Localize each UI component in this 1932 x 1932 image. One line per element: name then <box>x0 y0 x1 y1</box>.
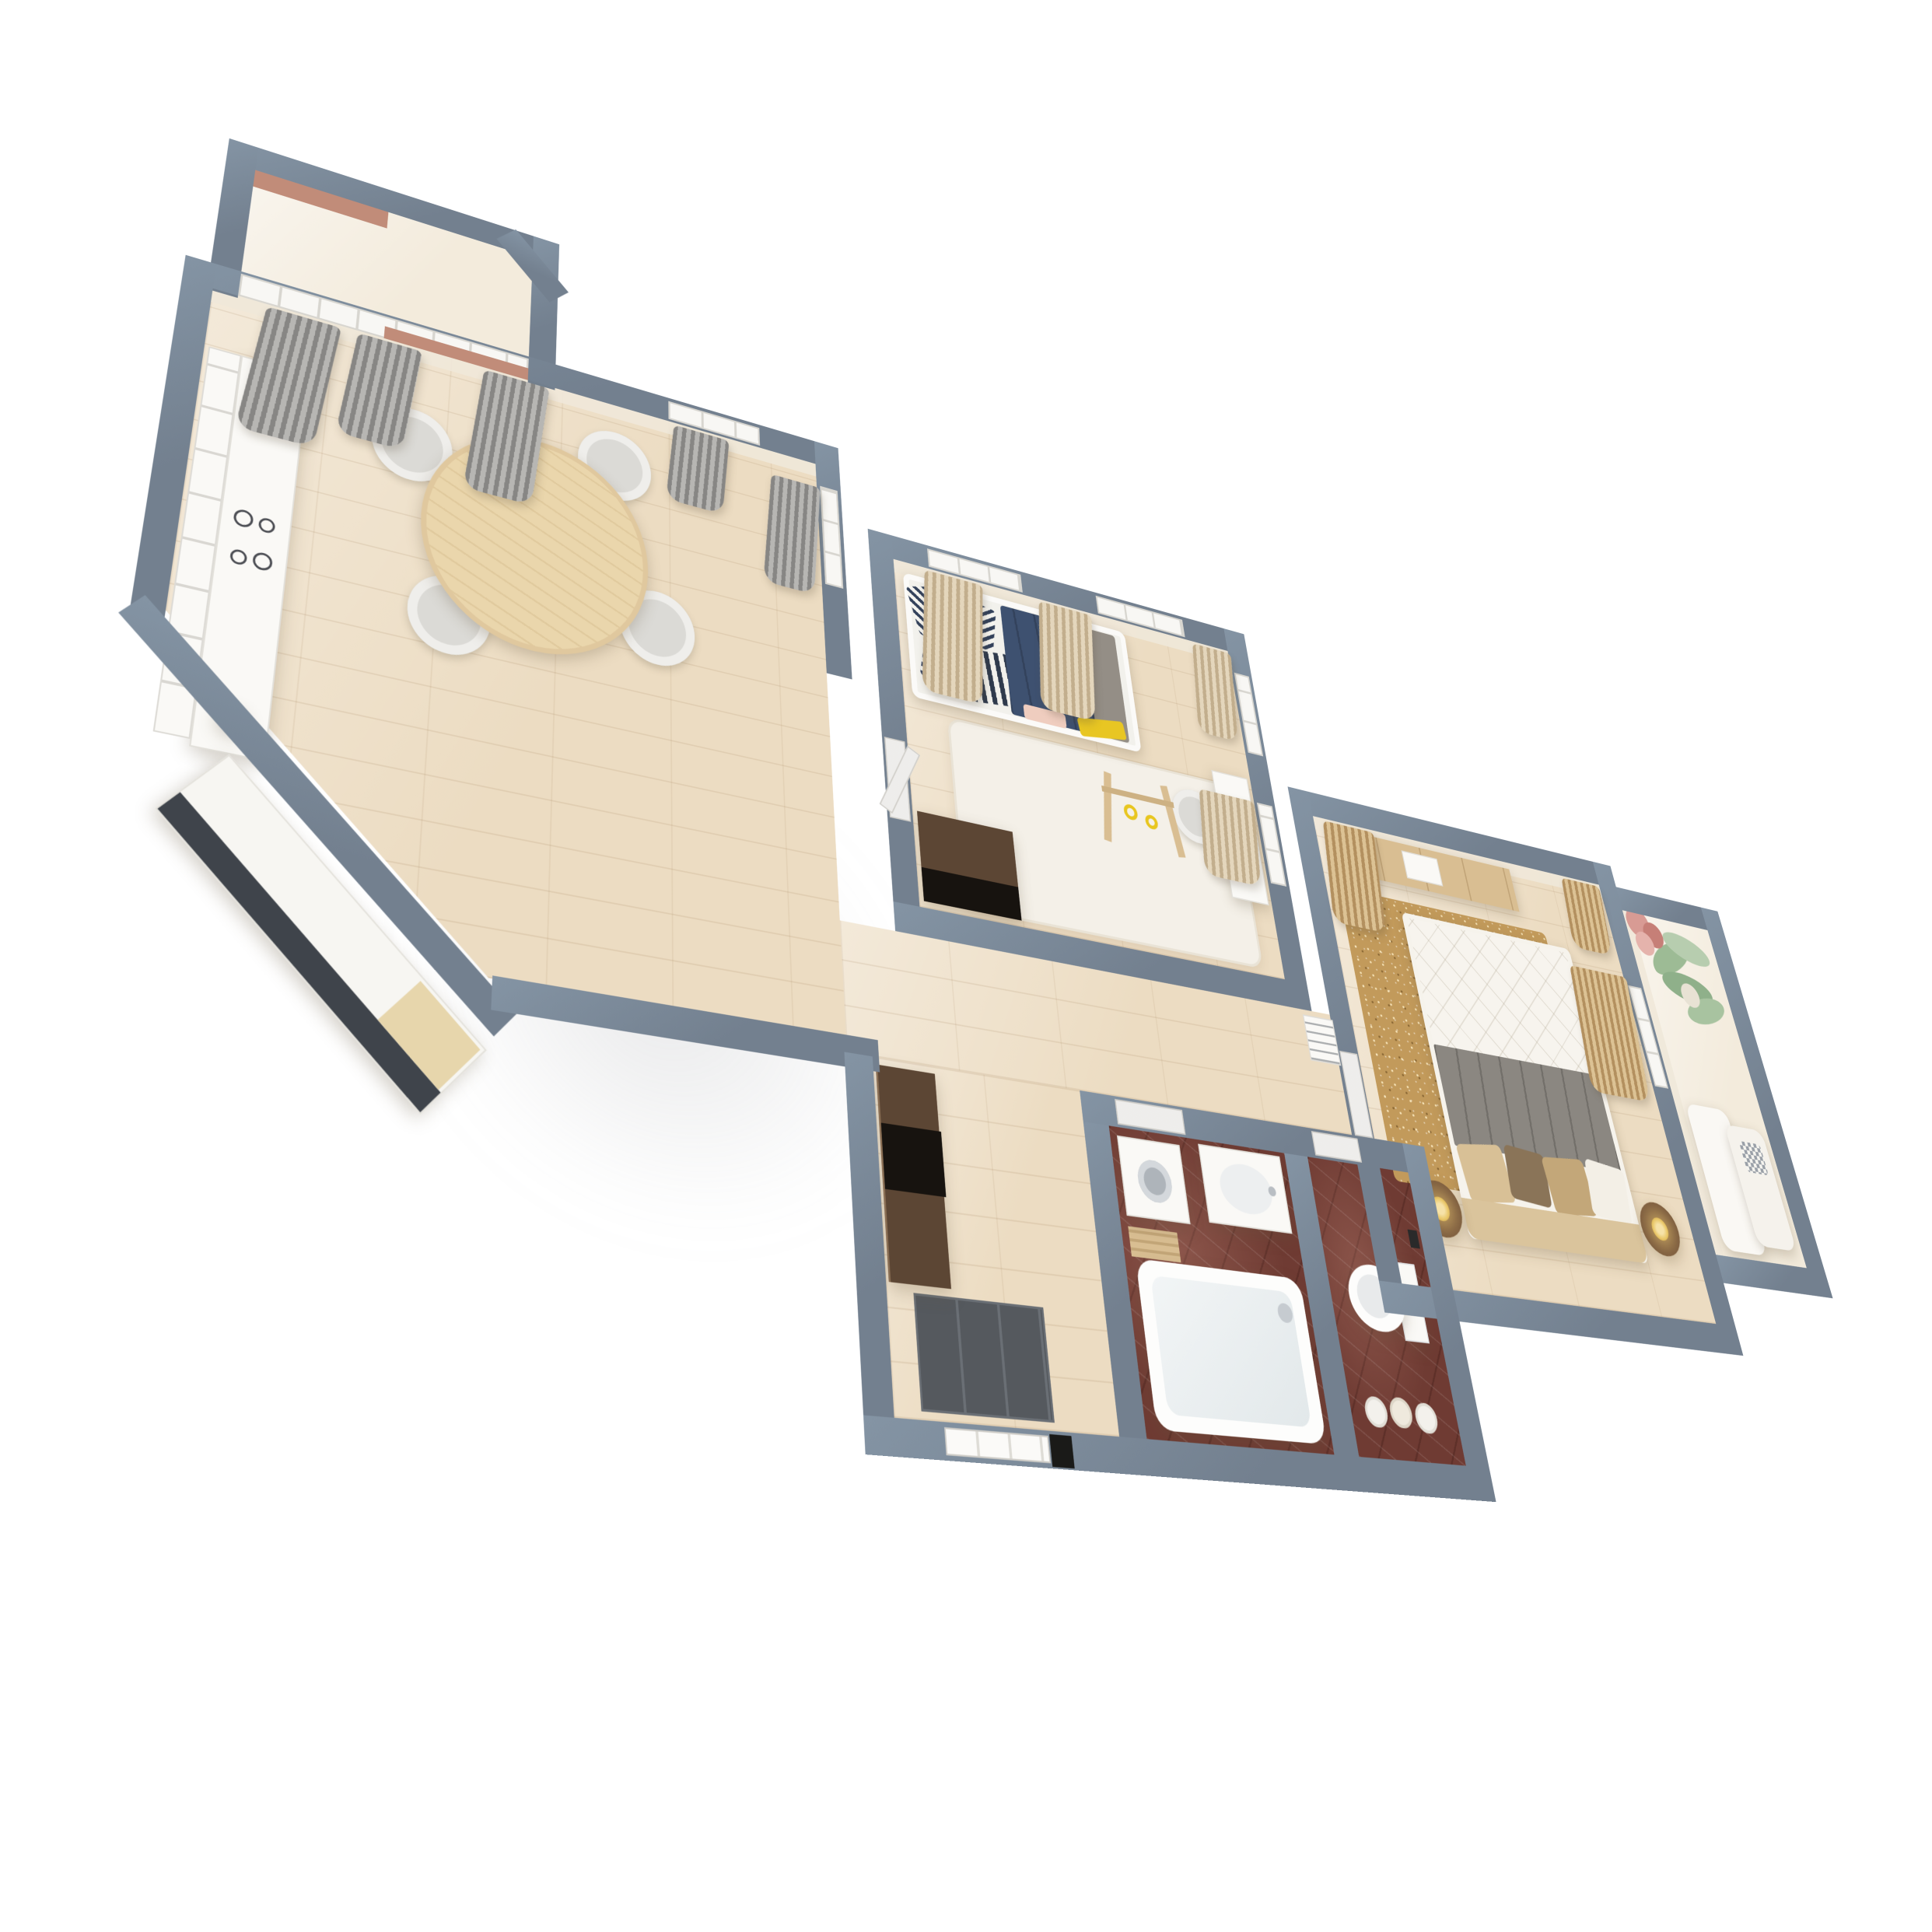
gym-ring-yellow-2 <box>1144 814 1158 831</box>
curtain-beige-kids-2 <box>1038 601 1095 722</box>
bath-vanity <box>1198 1144 1292 1234</box>
wc-towel-rolls <box>1361 1388 1445 1441</box>
gym-frame-left <box>1104 771 1111 842</box>
washing-machine <box>1117 1136 1191 1224</box>
entrance-doormat <box>913 1293 1055 1423</box>
apartment-plan <box>0 78 1932 1769</box>
curtain-beige-kids-1 <box>922 569 983 705</box>
entrance-door-gap <box>1049 1434 1075 1468</box>
wardrobe-open-niche <box>881 1123 947 1198</box>
vanity-basin <box>1216 1160 1276 1218</box>
render-canvas <box>0 0 1932 1932</box>
curtain-gray-notch <box>763 474 820 594</box>
towel-roll-3 <box>1412 1402 1440 1434</box>
bathtub-basin <box>1150 1276 1312 1428</box>
washer-door <box>1136 1158 1174 1205</box>
gym-ring-yellow-1 <box>1123 803 1139 821</box>
towel-roll-2 <box>1388 1396 1415 1429</box>
